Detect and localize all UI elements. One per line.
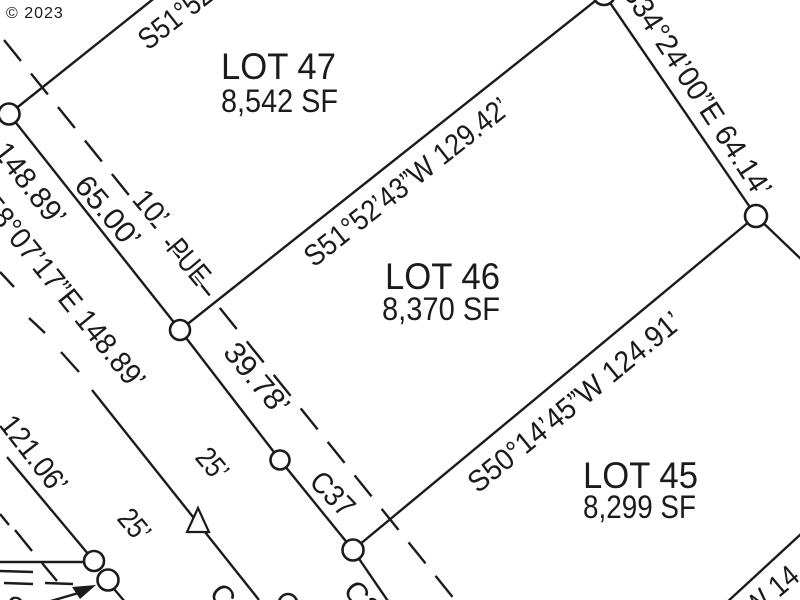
- svg-text:8,370 SF: 8,370 SF: [382, 291, 500, 327]
- svg-text:LOT 47: LOT 47: [221, 46, 336, 87]
- svg-text:© 2023: © 2023: [6, 5, 64, 22]
- svg-text:8,542 SF: 8,542 SF: [221, 83, 338, 119]
- svg-text:8,299 SF: 8,299 SF: [583, 489, 696, 525]
